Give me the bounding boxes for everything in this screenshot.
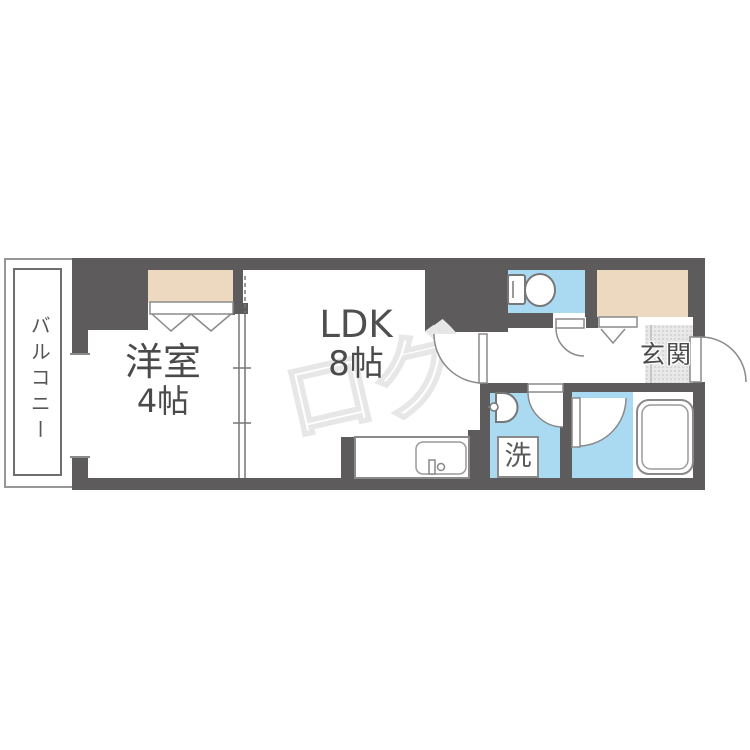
toilet-icon — [508, 274, 555, 306]
balcony-label: バルコニー — [24, 292, 54, 467]
floor-plan: ログ — [0, 0, 750, 750]
toilet-door-icon — [556, 319, 584, 356]
western-room-label: 洋室 4帖 — [100, 341, 226, 419]
entry-door-icon — [690, 337, 746, 382]
washroom-door-icon — [528, 384, 563, 427]
entrance-label: 玄関 — [634, 341, 698, 369]
western-room-name: 洋室 — [100, 341, 226, 384]
bathroom-door-icon — [572, 398, 626, 447]
folding-door-icon — [150, 302, 233, 331]
ldk-size: 8帖 — [293, 345, 419, 383]
ldk-label: LDK 8帖 — [293, 304, 419, 384]
washbasin-icon — [488, 393, 518, 422]
bathtub-icon — [637, 400, 693, 474]
entrance-closet-door-icon — [599, 317, 637, 343]
ldk-name: LDK — [293, 304, 419, 345]
washing-machine-label: 洗 — [498, 442, 538, 472]
western-room-size: 4帖 — [100, 384, 226, 420]
kitchen-counter — [355, 437, 469, 478]
sliding-door-icon — [233, 314, 251, 478]
